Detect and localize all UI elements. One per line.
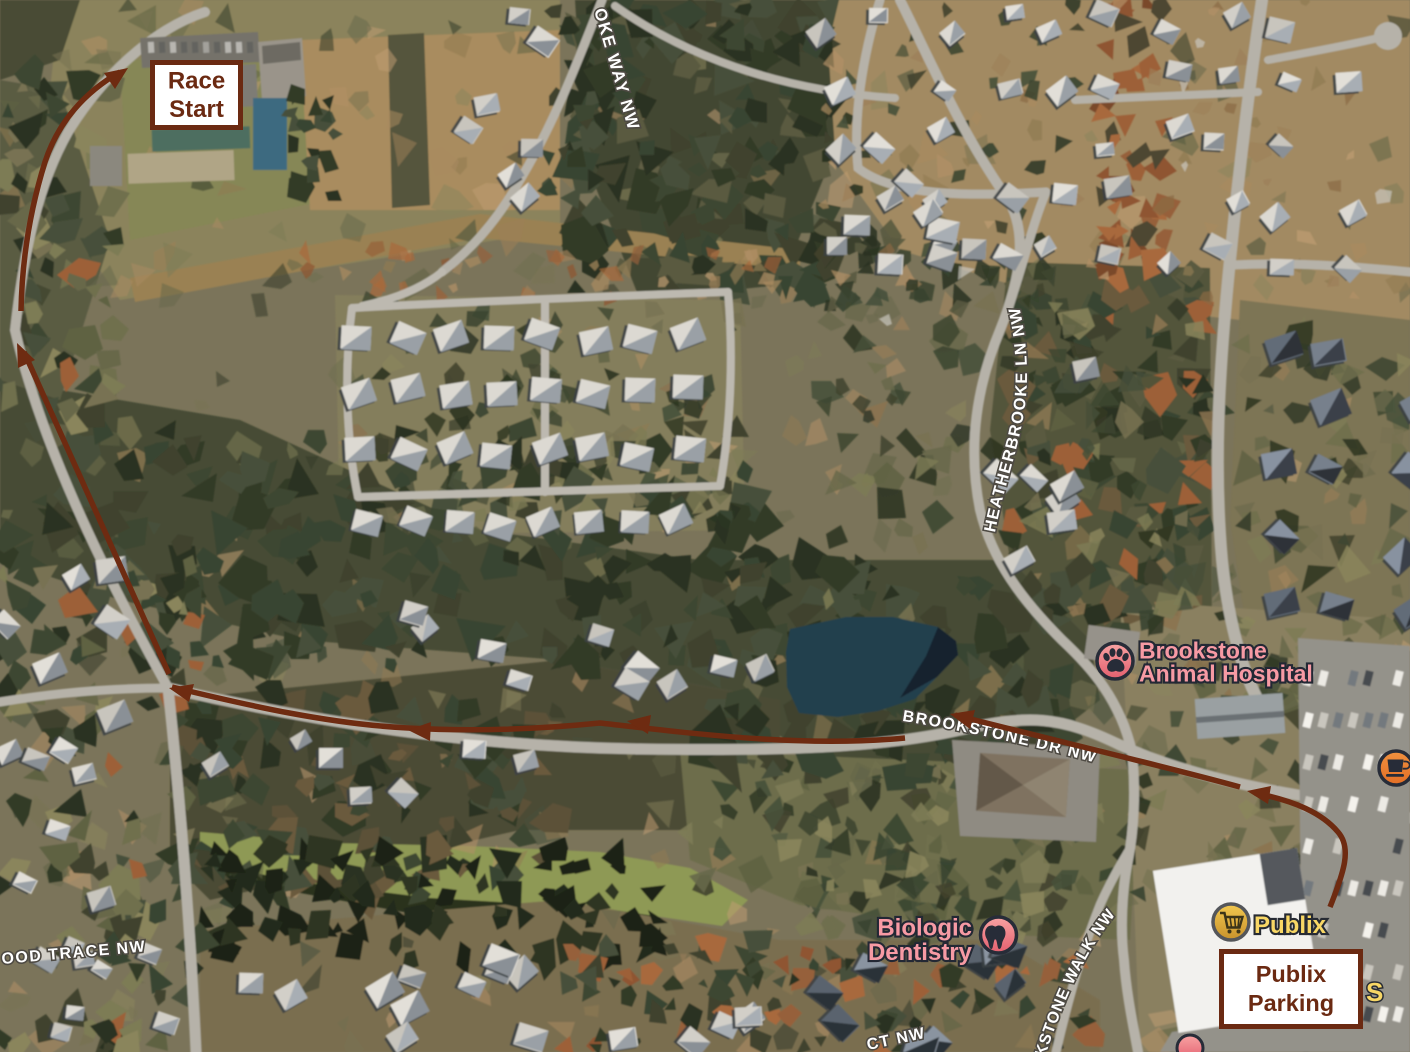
svg-text:Publix: Publix bbox=[1256, 961, 1327, 987]
svg-text:Start: Start bbox=[169, 96, 224, 123]
svg-text:Biologic: Biologic bbox=[877, 915, 972, 942]
svg-text:Race: Race bbox=[168, 68, 225, 95]
svg-text:Publix: Publix bbox=[1254, 912, 1327, 939]
svg-text:Animal Hospital: Animal Hospital bbox=[1139, 661, 1313, 687]
svg-text:Dentistry: Dentistry bbox=[868, 939, 973, 966]
svg-text:Parking: Parking bbox=[1248, 990, 1334, 1016]
svg-text:S: S bbox=[1366, 977, 1383, 1007]
